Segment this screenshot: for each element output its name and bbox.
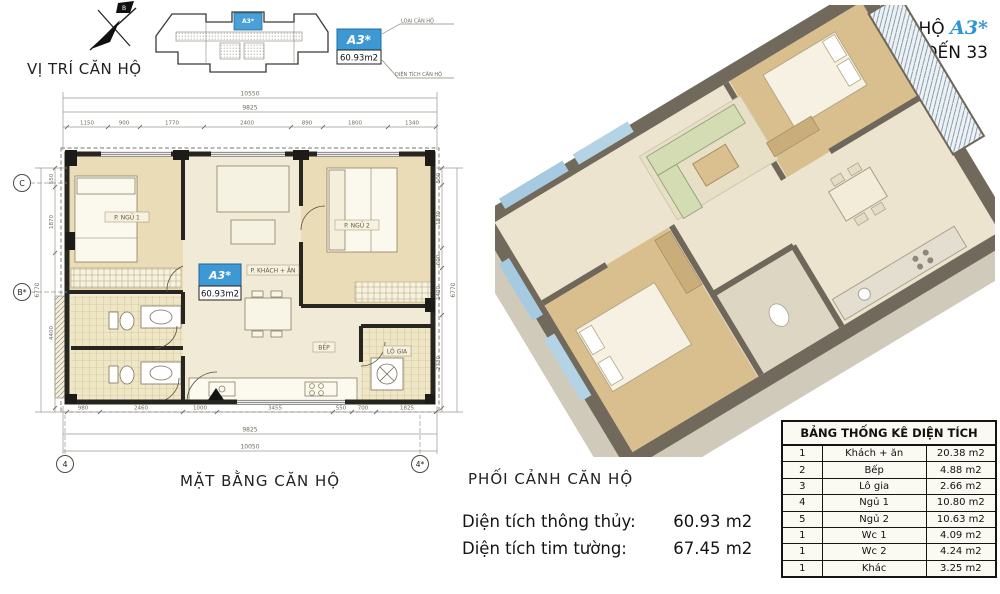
location-caption: VỊ TRÍ CĂN HỘ [27, 60, 142, 78]
svg-text:2730: 2730 [436, 356, 442, 370]
plan-caption: MẶT BẰNG CĂN HỘ [115, 472, 405, 490]
svg-text:C: C [19, 179, 25, 188]
row-name: Lô gia [822, 478, 926, 494]
svg-text:1825: 1825 [400, 406, 414, 412]
svg-text:500: 500 [436, 172, 442, 183]
row-area: 3.25 m2 [926, 560, 996, 577]
svg-text:4400: 4400 [49, 326, 55, 340]
label-kitchen: BẾP [318, 344, 330, 352]
row-no: 1 [782, 560, 822, 577]
row-no: 1 [782, 445, 822, 462]
svg-text:B*: B* [18, 288, 27, 297]
gross-area-line: Diện tích tim tường: 67.45 m2 [462, 535, 752, 562]
row-no: 4 [782, 495, 822, 511]
svg-text:4*: 4* [416, 460, 425, 469]
svg-text:6770: 6770 [34, 282, 41, 297]
compass-north-icon: B [78, 0, 150, 60]
building-keyplan: A3* [148, 2, 334, 84]
svg-text:10550: 10550 [240, 91, 259, 98]
svg-text:9825: 9825 [242, 105, 257, 112]
table-title: BẢNG THỐNG KÊ DIỆN TÍCH [782, 421, 996, 445]
table-row: 1 Khách + ăn 20.38 m2 [782, 445, 996, 462]
row-no: 3 [782, 478, 822, 494]
gross-area-label: Diện tích tim tường: [462, 535, 668, 562]
plan-badge-code: A3* [208, 269, 231, 282]
table-row: 2 Bếp 4.88 m2 [782, 462, 996, 478]
row-area: 10.63 m2 [926, 511, 996, 527]
row-area: 20.38 m2 [926, 445, 996, 462]
area-summary: Diện tích thông thủy: 60.93 m2 Diện tích… [462, 508, 752, 562]
svg-text:550: 550 [336, 406, 347, 412]
north-letter: B [122, 5, 126, 12]
svg-text:4: 4 [62, 460, 67, 469]
svg-text:2400: 2400 [240, 121, 254, 127]
callout-type-label: LOẠI CĂN HỘ [401, 18, 434, 25]
svg-text:1870: 1870 [49, 215, 55, 229]
row-name: Ngủ 2 [822, 511, 926, 527]
row-area: 4.09 m2 [926, 527, 996, 543]
svg-text:1400: 1400 [436, 286, 442, 300]
plan-unit-badge: A3* 60.93m2 [199, 264, 241, 300]
row-area: 2.66 m2 [926, 478, 996, 494]
svg-text:1340: 1340 [405, 121, 419, 127]
net-area-label: Diện tích thông thủy: [462, 508, 668, 535]
svg-text:550: 550 [49, 173, 55, 184]
row-no: 5 [782, 511, 822, 527]
unit-badge-callout: LOẠI CĂN HỘ A3* 60.93m2 DIỆN TÍCH CĂN HỘ [328, 16, 456, 90]
svg-text:2460: 2460 [134, 406, 148, 412]
dining-table [245, 291, 291, 337]
table-row: 1 Wc 1 4.09 m2 [782, 527, 996, 543]
row-name: Ngủ 1 [822, 495, 926, 511]
row-name: Khách + ăn [822, 445, 926, 462]
table-row: 3 Lô gia 2.66 m2 [782, 478, 996, 494]
svg-text:10050: 10050 [240, 444, 259, 451]
row-no: 2 [782, 462, 822, 478]
row-name: Wc 1 [822, 527, 926, 543]
table-row: 4 Ngủ 1 10.80 m2 [782, 495, 996, 511]
svg-text:1770: 1770 [165, 121, 179, 127]
badge-area: 60.93m2 [340, 54, 378, 64]
svg-text:980: 980 [78, 406, 89, 412]
row-no: 1 [782, 544, 822, 560]
floor-plan-2d: P. NGỦ 1 P. NGỦ 2 P. KHÁCH + ĂN BẾP LÔ G… [5, 80, 475, 484]
perspective-caption: PHỐI CẢNH CĂN HỘ [468, 470, 633, 488]
net-area-line: Diện tích thông thủy: 60.93 m2 [462, 508, 752, 535]
table-row: 1 Wc 2 4.24 m2 [782, 544, 996, 560]
row-area: 4.24 m2 [926, 544, 996, 560]
svg-text:1870: 1870 [436, 211, 442, 225]
label-balcony: LÔ GIA [387, 349, 408, 356]
area-statistics-table: BẢNG THỐNG KÊ DIỆN TÍCH 1 Khách + ăn 20.… [781, 420, 997, 578]
plan-badge-area: 60.93m2 [201, 290, 239, 300]
svg-text:1800: 1800 [348, 121, 362, 127]
washing-machine [371, 358, 403, 390]
svg-text:890: 890 [302, 121, 313, 127]
bed2 [327, 168, 397, 252]
row-no: 1 [782, 527, 822, 543]
svg-text:6770: 6770 [450, 282, 457, 297]
gross-area-value: 67.45 m2 [673, 539, 752, 558]
keyplan-unit-label: A3* [242, 18, 255, 25]
perspective-3d [495, 5, 995, 457]
label-bedroom2: P. NGỦ 2 [344, 222, 370, 230]
svg-text:600: 600 [436, 254, 442, 265]
floorplan-sheet: B VỊ TRÍ CĂN HỘ A3* LOẠI CĂN HỘ A3* 60.9… [0, 0, 1000, 594]
row-area: 4.88 m2 [926, 462, 996, 478]
svg-text:9825: 9825 [242, 427, 257, 434]
row-name: Khác [822, 560, 926, 577]
svg-text:700: 700 [358, 406, 369, 412]
row-name: Wc 2 [822, 544, 926, 560]
svg-text:900: 900 [119, 121, 130, 127]
svg-text:1000: 1000 [193, 406, 207, 412]
net-area-value: 60.93 m2 [673, 512, 752, 531]
row-area: 10.80 m2 [926, 495, 996, 511]
table-row: 1 Khác 3.25 m2 [782, 560, 996, 577]
label-living: P. KHÁCH + ĂN [250, 268, 295, 275]
callout-area-label: DIỆN TÍCH CĂN HỘ [395, 70, 442, 78]
label-bedroom1: P. NGỦ 1 [114, 214, 140, 222]
svg-text:3455: 3455 [268, 406, 282, 412]
table-row: 5 Ngủ 2 10.63 m2 [782, 511, 996, 527]
row-name: Bếp [822, 462, 926, 478]
badge-code: A3* [346, 33, 372, 47]
svg-text:1150: 1150 [80, 121, 94, 127]
